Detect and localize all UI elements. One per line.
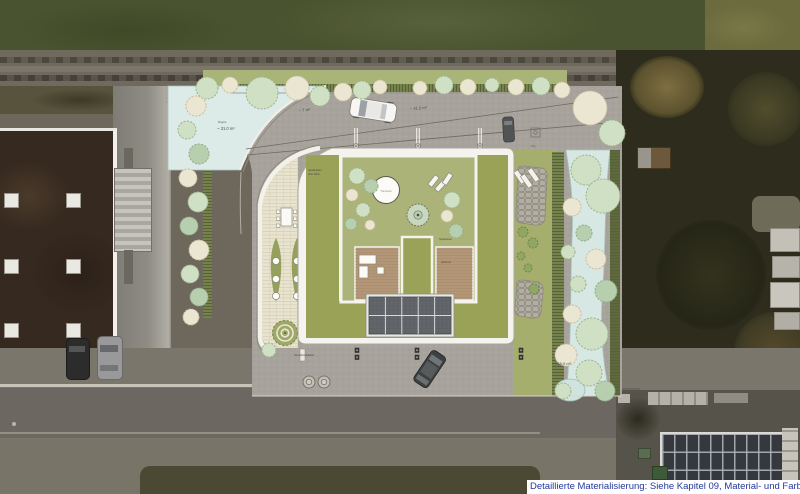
- aerial-site-plan: Rigole ~ 31.0 m² ~ 7 m² ~ 41.5 m² ~ 18.0…: [0, 0, 800, 494]
- hydrant-label: Wa: [531, 144, 536, 148]
- tree: [485, 78, 499, 92]
- tree: [586, 249, 606, 269]
- caption-text: Detaillierte Materialisierung: Siehe Kap…: [530, 481, 800, 492]
- trampoline-label: Trampolin: [380, 189, 392, 193]
- tree: [334, 83, 352, 101]
- tree: [346, 189, 358, 201]
- tree: [310, 86, 330, 106]
- tree: [599, 120, 625, 146]
- tree: [188, 192, 208, 212]
- tree: [179, 169, 197, 187]
- tree: [528, 238, 538, 248]
- tree: [586, 179, 620, 213]
- tree: [508, 79, 524, 95]
- fountain: [407, 204, 429, 226]
- small-parked-car: [502, 117, 514, 143]
- tree: [529, 284, 539, 294]
- bollard: [356, 357, 357, 358]
- area-label: ~ 18.0 m²: [554, 361, 572, 366]
- tree: [595, 280, 617, 302]
- tree: [576, 360, 602, 386]
- area-label: Rigole: [218, 120, 227, 124]
- garden-table: [277, 208, 297, 227]
- bollard: [417, 145, 419, 147]
- tree: [196, 77, 218, 99]
- tree: [190, 288, 208, 306]
- tree: [189, 144, 209, 164]
- tree: [563, 198, 581, 216]
- tree: [444, 192, 460, 208]
- area-label: ~ 31.0 m²: [217, 126, 235, 131]
- deck-label: Holzrost: [441, 260, 451, 264]
- tree: [365, 220, 375, 230]
- tree: [435, 76, 453, 94]
- tree: [356, 203, 370, 217]
- bollard: [520, 357, 521, 358]
- tree: [576, 225, 592, 241]
- tree: [570, 276, 586, 292]
- tree: [180, 217, 198, 235]
- tree: [563, 305, 581, 323]
- tree: [373, 80, 387, 94]
- bike-label: Veloabstellplätze: [294, 353, 315, 357]
- tree: [555, 383, 571, 399]
- tree: [262, 343, 276, 357]
- tree: [413, 81, 427, 95]
- solar-panels: [366, 294, 454, 337]
- tree: [518, 227, 528, 237]
- tree: [576, 318, 608, 350]
- caption-bar: Detaillierte Materialisierung: Siehe Kap…: [527, 480, 800, 494]
- tree: [246, 77, 278, 109]
- spiral-lawn: [273, 321, 298, 346]
- tree-to-plant-symbol: [321, 379, 326, 384]
- roof-label: Sandkasten: [308, 168, 322, 172]
- tree: [364, 179, 378, 193]
- bollard: [356, 350, 357, 351]
- tree: [353, 81, 371, 99]
- building-roof: [298, 148, 514, 361]
- tree: [561, 245, 575, 259]
- roof-label: über Dach: [308, 172, 321, 176]
- tree: [595, 381, 615, 401]
- tree: [186, 96, 206, 116]
- bollard: [479, 145, 481, 147]
- tree: [517, 252, 525, 260]
- tree: [554, 82, 570, 98]
- tree: [460, 79, 476, 95]
- bollard: [355, 145, 357, 147]
- tree: [449, 224, 463, 238]
- bollard: [416, 350, 417, 351]
- tree: [183, 309, 199, 325]
- tree: [181, 265, 199, 283]
- tree: [349, 168, 365, 184]
- site-plan: Rigole ~ 31.0 m² ~ 7 m² ~ 41.5 m² ~ 18.0…: [0, 0, 800, 494]
- tree: [532, 77, 550, 95]
- tree: [441, 210, 453, 222]
- tree: [345, 218, 357, 230]
- tree-to-plant-symbol: [306, 379, 311, 384]
- tree: [178, 121, 196, 139]
- tree: [524, 264, 532, 272]
- tree: [222, 77, 238, 93]
- lawn-label: Spielwiese: [439, 237, 452, 241]
- tree: [285, 76, 309, 100]
- bollard: [416, 357, 417, 358]
- tree: [573, 91, 607, 125]
- bollard: [520, 350, 521, 351]
- tree: [189, 240, 209, 260]
